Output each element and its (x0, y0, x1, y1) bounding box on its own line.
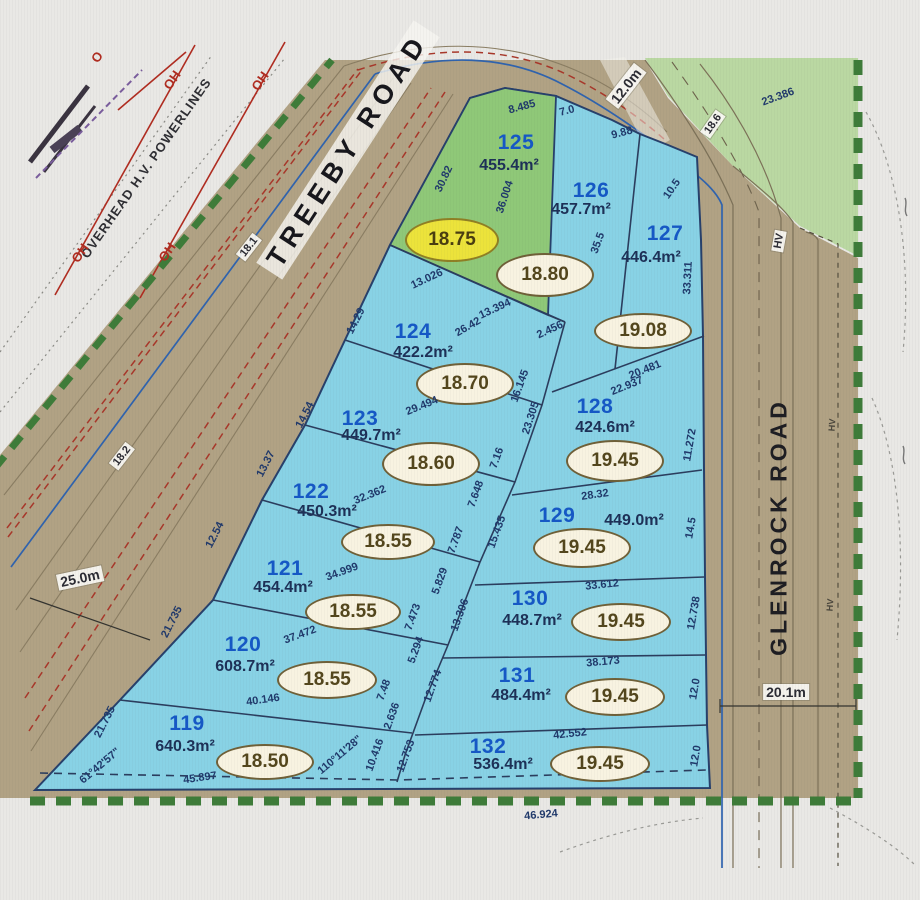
lot-124-area: 422.2m² (393, 344, 453, 362)
lot-120-number: 120 (225, 633, 262, 657)
lot-121-area: 454.4m² (253, 579, 313, 597)
dimension-label: 13.026 (409, 266, 445, 291)
lot-123-level-oval: 18.60 (382, 442, 480, 486)
lot-122-area: 450.3m² (297, 503, 357, 521)
annotation-1: 18.2 (109, 442, 135, 471)
dimension-label: 7.787 (446, 525, 467, 555)
dimension-label: 13.306 (449, 597, 472, 633)
dimension-label: 40.146 (246, 692, 281, 709)
overhead-powerlines-label: OVERHEAD H.V. POWERLINES (78, 75, 214, 261)
dimension-label: 10.5 (661, 177, 683, 201)
annotation-2: 18.6 (700, 109, 726, 138)
lot-119-level-oval: 18.50 (216, 744, 314, 780)
lot-131-level-oval: 19.45 (565, 678, 665, 716)
lot-120-level-oval: 18.55 (277, 661, 377, 699)
dimension-label: 13.394 (477, 296, 513, 321)
annotation-entry_width: 12.0m (606, 63, 647, 109)
lot-126-area: 457.7m² (551, 201, 611, 219)
dimension-label: 32.362 (352, 483, 388, 507)
dimension-label: 7.473 (403, 602, 424, 632)
dimension-label: 10.416 (364, 737, 387, 773)
lot-131-number: 131 (499, 664, 536, 688)
lot-129-area: 449.0m² (604, 512, 664, 530)
dimension-label: 5.829 (430, 566, 451, 596)
dimension-label: 33.612 (585, 577, 620, 592)
lot-129-number: 129 (539, 504, 576, 528)
dimension-label: 12.0 (688, 744, 704, 767)
label-layer: TREEBY ROAD GLENROCK ROAD OVERHEAD H.V. … (0, 0, 920, 900)
annotation-width: 20.1m (763, 684, 809, 700)
lot-130-level-oval: 19.45 (571, 603, 671, 641)
annotation-oh_marker: OH (155, 240, 178, 265)
annotation-oh_marker: OH (248, 69, 271, 94)
dimension-label: 110°11'28" (316, 733, 365, 777)
dimension-label: 61°42'57" (77, 746, 122, 787)
lot-128-number: 128 (577, 395, 614, 419)
dimension-label: 14.29 (344, 306, 367, 336)
lot-128-area: 424.6m² (575, 419, 635, 437)
lot-126-number: 126 (573, 179, 610, 203)
dimension-label: 23.386 (760, 86, 796, 109)
dimension-label: 11.272 (681, 428, 699, 463)
dimension-label: 7.48 (375, 678, 394, 702)
dimension-label: 23.305 (520, 400, 542, 436)
lot-121-number: 121 (267, 557, 304, 581)
lot-123-area: 449.7m² (341, 427, 401, 445)
glenrock-road-label: GLENROCK ROAD (766, 390, 793, 664)
annotation-hv_marker: HV (824, 598, 835, 611)
lot-132-area: 536.4m² (473, 756, 533, 774)
lot-121-level-oval: 18.55 (305, 594, 401, 630)
lot-127-level-oval: 19.08 (594, 313, 692, 349)
annotation-0: 18.1 (236, 233, 262, 262)
dimension-label: 46.924 (524, 808, 559, 823)
dimension-label: 33.311 (681, 261, 695, 295)
dimension-label: 14.5 (683, 516, 699, 539)
dimension-label: 36.004 (494, 179, 516, 215)
dimension-label: 42.552 (553, 726, 588, 741)
dimension-label: 12.738 (685, 595, 703, 630)
annotation-o_marker: O (88, 49, 106, 66)
lot-132-level-oval: 19.45 (550, 746, 650, 782)
dimension-label: 30.82 (433, 164, 456, 194)
lot-119-number: 119 (169, 712, 204, 736)
dimension-label: 7.0 (558, 103, 576, 119)
dimension-label: 35.5 (589, 231, 608, 255)
dimension-label: 14.54 (293, 400, 316, 430)
dimension-label: 2.636 (382, 701, 403, 731)
dimension-label: 13.37 (254, 449, 277, 479)
lot-120-area: 608.7m² (215, 658, 275, 676)
lot-126-level-oval: 18.80 (496, 253, 594, 297)
dimension-label: 26.42 (453, 315, 483, 339)
lot-125-number: 125 (498, 131, 535, 155)
lot-122-level-oval: 18.55 (341, 524, 435, 560)
lot-122-number: 122 (293, 480, 330, 504)
lot-125-level-oval: 18.75 (405, 218, 499, 262)
dimension-label: 21.735 (92, 704, 118, 739)
dimension-label: 9.88 (610, 124, 634, 141)
lot-129-level-oval: 19.45 (533, 528, 631, 568)
lot-127-number: 127 (647, 222, 684, 246)
dimension-label: 15.435 (486, 514, 509, 550)
dimension-label: 12.774 (422, 668, 445, 704)
dimension-label: 2.456 (535, 319, 565, 342)
dimension-label: 34.999 (324, 561, 360, 584)
lot-127-area: 446.4m² (621, 249, 681, 267)
dimension-label: 45.897 (183, 770, 218, 787)
lot-119-area: 640.3m² (155, 738, 215, 756)
dimension-label: 7.648 (466, 479, 487, 509)
lot-128-level-oval: 19.45 (566, 440, 664, 482)
dimension-label: 12.54 (203, 520, 226, 550)
dimension-label: 12.753 (395, 738, 418, 774)
annotation-width: 25.0m (56, 565, 104, 590)
annotation-hv_marker: HV (826, 418, 837, 431)
dimension-label: 28.32 (581, 487, 610, 503)
annotation-hv_marker: HV (771, 229, 787, 252)
dimension-label: 5.294 (406, 635, 427, 665)
lot-125-area: 455.4m² (479, 157, 539, 175)
lot-130-area: 448.7m² (502, 612, 562, 630)
dimension-label: 7.16 (488, 446, 507, 470)
annotation-oh_marker: OH (160, 68, 183, 93)
dimension-label: 22.937 (609, 374, 645, 398)
lot-130-number: 130 (512, 587, 549, 611)
dimension-label: 8.485 (507, 98, 537, 117)
dimension-label: 29.494 (404, 394, 440, 418)
lot-131-area: 484.4m² (491, 687, 551, 705)
dimension-label: 21.735 (159, 604, 185, 639)
dimension-label: 38.173 (586, 655, 621, 670)
subdivision-plan: TREEBY ROAD GLENROCK ROAD OVERHEAD H.V. … (0, 0, 920, 900)
dimension-label: 12.0 (687, 677, 703, 700)
dimension-label: 37.472 (282, 624, 318, 647)
lot-124-number: 124 (395, 320, 432, 344)
